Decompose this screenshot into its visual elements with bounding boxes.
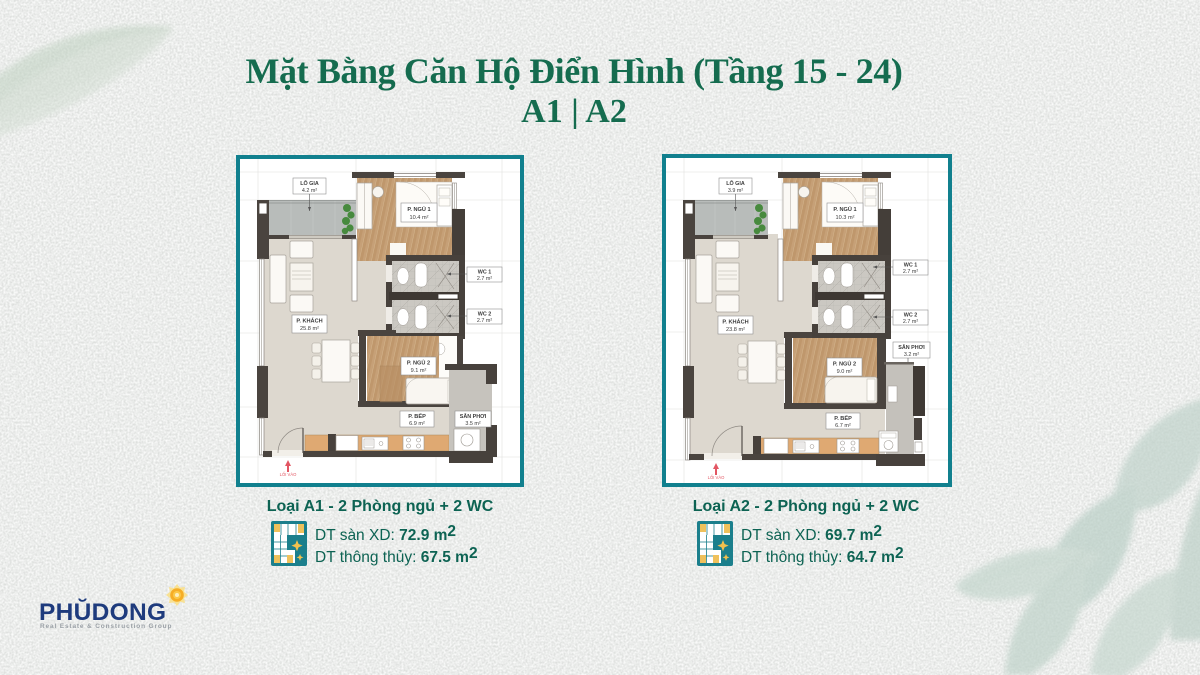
svg-text:9.1 m²: 9.1 m² [411, 368, 427, 374]
svg-text:6.7 m²: 6.7 m² [835, 423, 851, 429]
svg-text:10.3 m²: 10.3 m² [836, 215, 855, 221]
svg-text:2.7 m²: 2.7 m² [477, 318, 492, 324]
svg-text:25.8 m²: 25.8 m² [300, 326, 319, 332]
svg-text:P. KHÁCH: P. KHÁCH [296, 318, 322, 325]
svg-text:P. NGỦ 1: P. NGỦ 1 [833, 206, 856, 213]
svg-text:2.7 m²: 2.7 m² [477, 276, 492, 282]
svg-text:10.4 m²: 10.4 m² [410, 215, 429, 221]
svg-text:WC 1: WC 1 [478, 270, 491, 276]
svg-text:P. NGỦ 1: P. NGỦ 1 [407, 206, 430, 213]
svg-text:SÂN PHƠI: SÂN PHƠI [898, 344, 925, 351]
svg-text:WC 2: WC 2 [478, 312, 491, 318]
svg-text:2.7 m²: 2.7 m² [903, 269, 918, 275]
svg-text:LỐI VÀO: LỐI VÀO [708, 475, 725, 480]
svg-text:3.2 m²: 3.2 m² [904, 352, 919, 358]
svg-text:P. NGỦ 2: P. NGỦ 2 [407, 360, 430, 367]
svg-text:23.8 m²: 23.8 m² [726, 327, 745, 333]
svg-text:P. NGỦ 2: P. NGỦ 2 [833, 361, 856, 368]
svg-text:2.7 m²: 2.7 m² [903, 319, 918, 325]
svg-text:3.5 m²: 3.5 m² [465, 421, 480, 427]
svg-text:LÔ GIA: LÔ GIA [726, 179, 745, 187]
svg-text:LÔ GIA: LÔ GIA [300, 179, 319, 187]
svg-text:WC 2: WC 2 [904, 313, 917, 319]
svg-text:3.9 m²: 3.9 m² [728, 188, 743, 194]
svg-text:6.9 m²: 6.9 m² [409, 421, 425, 427]
svg-text:P. KHÁCH: P. KHÁCH [722, 319, 748, 326]
svg-text:SÂN PHƠI: SÂN PHƠI [460, 413, 487, 420]
svg-text:WC 1: WC 1 [904, 263, 917, 269]
svg-text:P. BẾP: P. BẾP [834, 415, 852, 422]
svg-text:9.0 m²: 9.0 m² [837, 369, 853, 375]
svg-text:LỐI VÀO: LỐI VÀO [280, 472, 297, 477]
svg-text:P. BẾP: P. BẾP [408, 413, 426, 420]
svg-text:4.2 m²: 4.2 m² [302, 188, 317, 194]
